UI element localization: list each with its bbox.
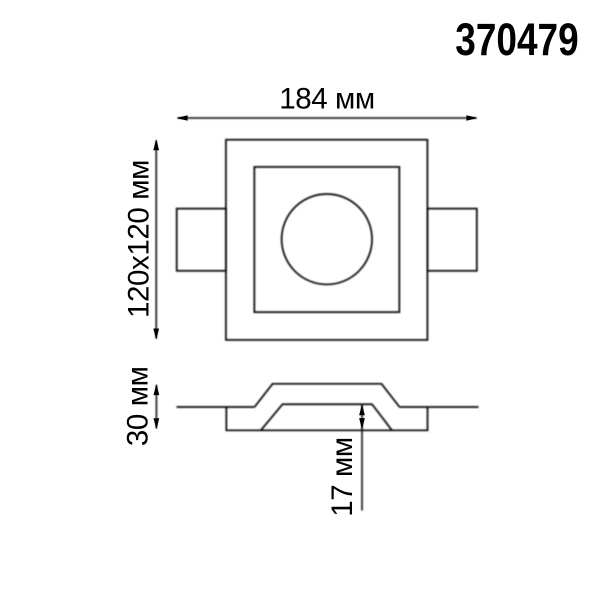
svg-text:370479: 370479 [455, 15, 578, 65]
svg-text:17 мм: 17 мм [326, 437, 359, 517]
svg-text:120x120 мм: 120x120 мм [123, 160, 156, 318]
svg-text:184 мм: 184 мм [279, 83, 375, 116]
svg-text:30 мм: 30 мм [121, 367, 154, 447]
